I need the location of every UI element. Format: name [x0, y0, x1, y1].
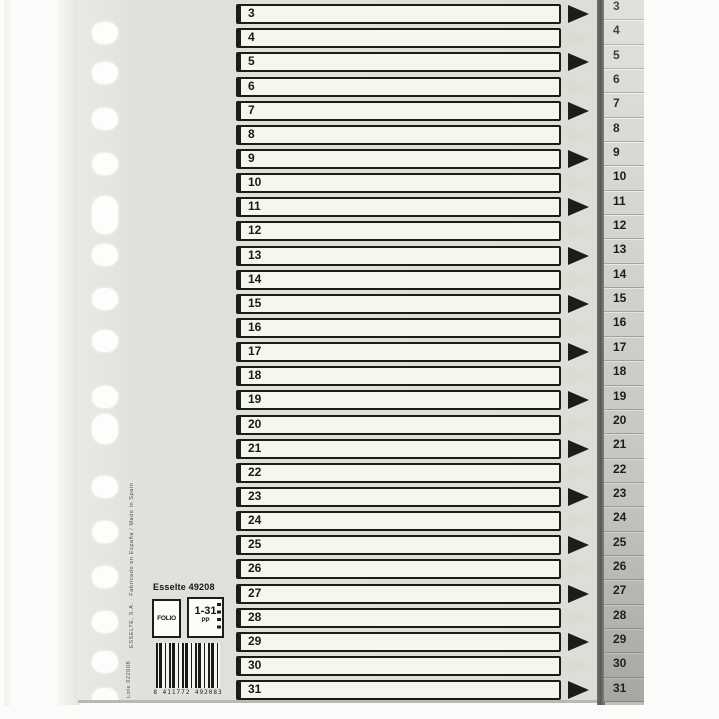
arrow-icon: [568, 367, 589, 385]
arrow-icon: [568, 78, 589, 96]
row-entry-box: 13: [236, 246, 561, 266]
row-entry-box: 5: [236, 52, 561, 72]
row-entry-box: 30: [236, 656, 561, 676]
punch-holes-icon: [217, 603, 221, 632]
index-row: 4: [236, 28, 589, 48]
index-row: 11: [236, 197, 589, 217]
arrow-icon: [568, 198, 589, 216]
index-tab: 10: [604, 166, 644, 190]
arrow-icon: [568, 560, 589, 578]
arrow-icon: [568, 512, 589, 530]
arrow-icon: [568, 295, 589, 313]
index-row: 24: [236, 511, 589, 531]
index-row: 22: [236, 463, 589, 483]
index-tab: 7: [604, 93, 644, 117]
index-tab: 17: [604, 337, 644, 361]
range-badge: 1-31 PP: [187, 597, 224, 638]
punch-hole: [92, 521, 118, 543]
punch-hole: [92, 330, 118, 352]
index-tab: 19: [604, 386, 644, 410]
row-entry-box: 19: [236, 390, 561, 410]
arrow-icon: [568, 440, 589, 458]
row-entry-box: 27: [236, 584, 561, 604]
index-row: 29: [236, 632, 589, 652]
arrow-icon: [568, 681, 589, 699]
index-row: 7: [236, 101, 589, 121]
row-entry-box: 8: [236, 125, 561, 145]
arrow-icon: [568, 488, 589, 506]
index-tab: 20: [604, 410, 644, 434]
arrow-icon: [568, 174, 589, 192]
barcode-digits: 8 411772 492083: [150, 689, 226, 696]
index-row: 12: [236, 221, 589, 241]
row-entry-box: 21: [236, 439, 561, 459]
index-tab: 8: [604, 118, 644, 142]
index-row: 3: [236, 4, 589, 24]
row-entry-box: 10: [236, 173, 561, 193]
index-row: 16: [236, 318, 589, 338]
index-tab: 3: [604, 0, 644, 20]
index-row: 20: [236, 415, 589, 435]
punch-hole: [92, 244, 118, 266]
brand-label: Esselte 49208: [153, 582, 215, 592]
index-tab: 31: [604, 678, 644, 702]
arrow-icon: [568, 222, 589, 240]
index-row: 5: [236, 52, 589, 72]
index-tab: 15: [604, 288, 644, 312]
row-entry-box: 16: [236, 318, 561, 338]
index-tab: 18: [604, 361, 644, 385]
arrow-icon: [568, 102, 589, 120]
barcode-bars: [156, 643, 220, 688]
row-entry-box: 11: [236, 197, 561, 217]
punch-hole: [92, 22, 118, 44]
row-entry-box: 22: [236, 463, 561, 483]
row-entry-box: 25: [236, 535, 561, 555]
side-imprint-text: ESSELTE, S.A. · Fabricado en España / Ma…: [129, 412, 135, 648]
punch-hole: [92, 108, 118, 130]
row-entry-box: 28: [236, 608, 561, 628]
index-row: 26: [236, 559, 589, 579]
index-row: 21: [236, 439, 589, 459]
row-entry-box: 24: [236, 511, 561, 531]
punch-hole: [92, 62, 118, 84]
folio-label: FOLIO: [157, 615, 176, 622]
row-entry-box: 15: [236, 294, 561, 314]
punch-hole: [92, 386, 118, 408]
tab-stack: 3456789101112131415161718192021222324252…: [604, 0, 644, 702]
index-row: 18: [236, 366, 589, 386]
index-row: 28: [236, 608, 589, 628]
arrow-icon: [568, 585, 589, 603]
index-row: 17: [236, 342, 589, 362]
index-tab: 14: [604, 264, 644, 288]
index-tab: 28: [604, 605, 644, 629]
index-tab: 24: [604, 507, 644, 531]
arrow-icon: [568, 53, 589, 71]
punch-hole: [92, 288, 118, 310]
punch-hole: [92, 196, 118, 234]
index-tab: 5: [604, 45, 644, 69]
index-row: 8: [236, 125, 589, 145]
row-entry-box: 6: [236, 77, 561, 97]
punch-hole: [92, 476, 118, 498]
index-row: 30: [236, 656, 589, 676]
arrow-icon: [568, 126, 589, 144]
index-rows: 3 4 5 6 7 8 9 10: [236, 0, 589, 700]
back-sheet-edge: [58, 0, 79, 705]
index-row: 9: [236, 149, 589, 169]
index-tab: 16: [604, 312, 644, 336]
index-tab: 21: [604, 434, 644, 458]
row-entry-box: 26: [236, 559, 561, 579]
index-row: 19: [236, 390, 589, 410]
arrow-icon: [568, 247, 589, 265]
punch-hole: [92, 153, 118, 175]
index-tab: 22: [604, 459, 644, 483]
index-tab: 11: [604, 191, 644, 215]
row-entry-box: 14: [236, 270, 561, 290]
punch-hole: [92, 611, 118, 633]
punch-hole: [92, 414, 118, 444]
arrow-icon: [568, 343, 589, 361]
row-entry-box: 23: [236, 487, 561, 507]
index-row: 15: [236, 294, 589, 314]
arrow-icon: [568, 150, 589, 168]
row-entry-box: 3: [236, 4, 561, 24]
row-entry-box: 4: [236, 28, 561, 48]
punch-hole: [92, 566, 118, 588]
index-row: 6: [236, 77, 589, 97]
index-row: 13: [236, 246, 589, 266]
punch-hole: [92, 651, 118, 673]
index-row: 10: [236, 173, 589, 193]
index-tab: 4: [604, 20, 644, 44]
arrow-icon: [568, 633, 589, 651]
index-tab: 27: [604, 580, 644, 604]
arrow-icon: [568, 271, 589, 289]
row-entry-box: 31: [236, 680, 561, 700]
index-tab: 25: [604, 532, 644, 556]
row-entry-box: 18: [236, 366, 561, 386]
punch-hole: [92, 688, 118, 703]
index-row: 14: [236, 270, 589, 290]
arrow-icon: [568, 29, 589, 47]
arrow-icon: [568, 657, 589, 675]
index-tab: 29: [604, 629, 644, 653]
index-row: 27: [236, 584, 589, 604]
index-row: 25: [236, 535, 589, 555]
arrow-icon: [568, 319, 589, 337]
arrow-icon: [568, 5, 589, 23]
arrow-icon: [568, 464, 589, 482]
index-tab: 9: [604, 142, 644, 166]
folio-badge: FOLIO: [152, 599, 181, 638]
row-entry-box: 9: [236, 149, 561, 169]
index-tab: 30: [604, 653, 644, 677]
index-row: 23: [236, 487, 589, 507]
background-sheet-streak: [4, 0, 10, 706]
index-tab: 12: [604, 215, 644, 239]
product-photo: ESSELTE, S.A. · Fabricado en España / Ma…: [0, 0, 719, 719]
row-entry-box: 7: [236, 101, 561, 121]
index-tab: 6: [604, 69, 644, 93]
arrow-icon: [568, 536, 589, 554]
row-entry-box: 29: [236, 632, 561, 652]
lot-number-text: Lote 022008: [126, 648, 132, 698]
row-entry-box: 20: [236, 415, 561, 435]
arrow-icon: [568, 391, 589, 409]
arrow-icon: [568, 609, 589, 627]
index-tab: 13: [604, 239, 644, 263]
index-tab: 23: [604, 483, 644, 507]
index-row: 31: [236, 680, 589, 700]
row-entry-box: 17: [236, 342, 561, 362]
index-tab: 26: [604, 556, 644, 580]
row-entry-box: 12: [236, 221, 561, 241]
arrow-icon: [568, 416, 589, 434]
